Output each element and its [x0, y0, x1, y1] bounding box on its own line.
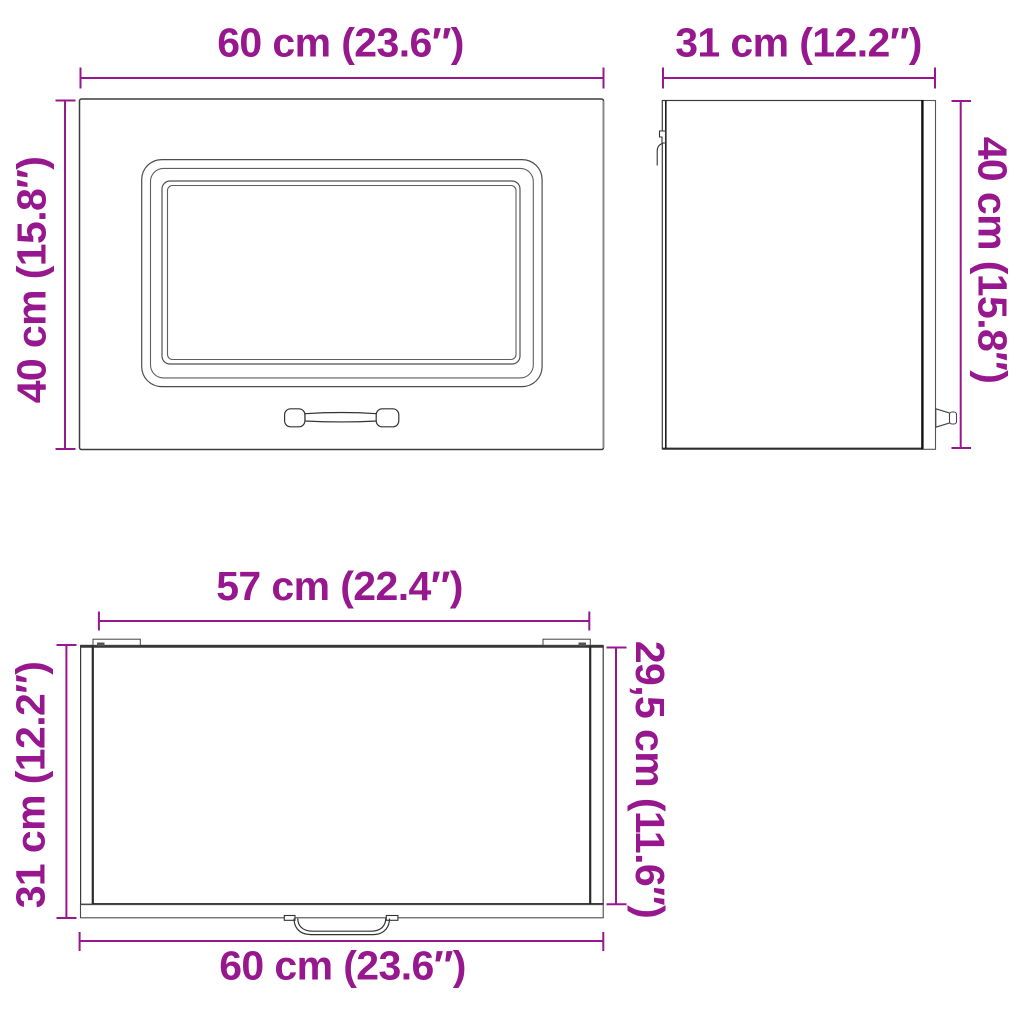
svg-text:31 cm (12.2″): 31 cm (12.2″)	[8, 662, 54, 909]
svg-text:40 cm (15.8″): 40 cm (15.8″)	[970, 137, 1016, 384]
svg-text:60 cm (23.6″): 60 cm (23.6″)	[217, 20, 464, 66]
svg-text:57 cm (22.4″): 57 cm (22.4″)	[216, 563, 463, 609]
svg-text:40 cm (15.8″): 40 cm (15.8″)	[9, 157, 55, 404]
svg-text:60 cm (23.6″): 60 cm (23.6″)	[219, 943, 466, 989]
svg-text:31 cm (12.2″): 31 cm (12.2″)	[675, 20, 922, 66]
svg-text:29,5 cm (11.6″): 29,5 cm (11.6″)	[627, 641, 673, 918]
